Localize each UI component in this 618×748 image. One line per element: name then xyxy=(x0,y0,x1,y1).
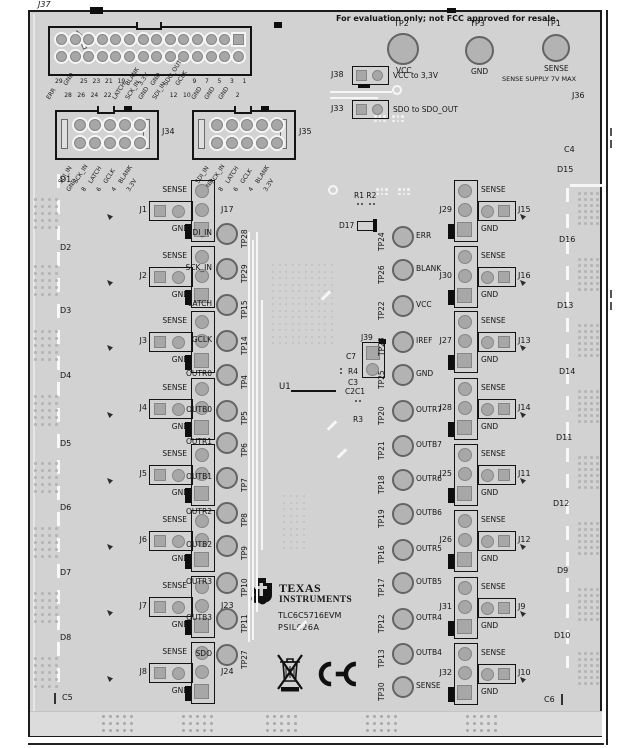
via-dot xyxy=(48,685,51,688)
jumper-label: J8 xyxy=(129,668,147,677)
via-dot xyxy=(41,265,44,268)
strip-dot xyxy=(203,729,206,732)
jumper-gnd-mark xyxy=(185,554,191,569)
via-dot xyxy=(292,264,294,266)
via-dot xyxy=(584,528,587,531)
via-dot xyxy=(41,541,44,544)
silk-dot xyxy=(398,193,401,196)
strip-dot xyxy=(480,729,483,732)
jumper-pad xyxy=(195,599,209,613)
via-dot xyxy=(292,303,294,305)
testpoint-TP30 xyxy=(392,676,414,698)
tp-number-label: TP30 xyxy=(378,673,388,701)
jumper-gnd-mark xyxy=(448,488,454,503)
via-dot xyxy=(34,541,37,544)
via-dot xyxy=(584,670,587,673)
via-dot xyxy=(590,198,593,201)
fiducial-mark xyxy=(90,7,103,14)
via-dot xyxy=(279,316,281,318)
via-dot xyxy=(290,547,292,549)
via-dot xyxy=(324,284,326,286)
via-dot xyxy=(48,409,51,412)
via-dot xyxy=(578,540,581,543)
jumper-sense-label: SENSE xyxy=(481,516,506,524)
via-dot xyxy=(48,592,51,595)
jumper-gnd-mark xyxy=(185,488,191,503)
j37-pin-pad xyxy=(192,34,203,45)
led-designator: D12 xyxy=(553,500,569,509)
strip-dot xyxy=(182,715,185,718)
via-dot xyxy=(55,490,58,493)
via-dot xyxy=(34,599,37,602)
tp-number-label: TP22 xyxy=(378,292,388,320)
via-dot xyxy=(41,293,44,296)
via-dot xyxy=(290,515,292,517)
strip-dot xyxy=(280,722,283,725)
testpoint-TP23 xyxy=(392,331,414,353)
tp-signal-label: OUTR5 xyxy=(416,545,442,553)
jumper-gnd-label: GND xyxy=(481,356,498,364)
via-dot xyxy=(596,354,599,357)
via-dot xyxy=(596,652,599,655)
via-dot xyxy=(303,528,305,530)
via-dot xyxy=(290,528,292,530)
via-dot xyxy=(34,606,37,609)
via-dot xyxy=(48,548,51,551)
via-dot xyxy=(596,264,599,267)
via-dot xyxy=(318,303,320,305)
via-dot xyxy=(272,271,274,273)
via-dot xyxy=(285,264,287,266)
header-pin-pad xyxy=(241,137,253,149)
via-dot xyxy=(596,258,599,261)
via-dot xyxy=(55,337,58,340)
jumper-pad xyxy=(457,486,472,501)
jumper-pad xyxy=(154,667,166,679)
via-dot xyxy=(48,469,51,472)
jumper-gnd-mark xyxy=(448,422,454,437)
via-dot xyxy=(318,336,320,338)
j37-pin-number: 9 xyxy=(193,79,197,86)
edge-tick xyxy=(610,140,612,148)
silk-dot xyxy=(385,188,388,191)
via-dot xyxy=(584,480,587,483)
via-dot xyxy=(272,316,274,318)
via-dot xyxy=(48,555,51,558)
jumper-pad xyxy=(172,667,185,680)
via-dot xyxy=(34,351,37,354)
via-dot xyxy=(34,671,37,674)
testpoint-label-tp3: TP3 xyxy=(470,20,485,29)
via-dot xyxy=(34,678,37,681)
testpoint-TP5 xyxy=(216,400,238,422)
jumper-pad xyxy=(458,600,472,614)
via-dot xyxy=(590,324,593,327)
via-dot xyxy=(584,588,587,591)
ic-outline-line xyxy=(291,390,336,392)
via-dot xyxy=(296,502,298,504)
testpoint-TP14 xyxy=(216,330,238,352)
testpoint-TP17 xyxy=(392,572,414,594)
strip-dot xyxy=(380,729,383,732)
via-dot xyxy=(55,330,58,333)
connector-label-j34: J34 xyxy=(162,128,175,137)
jumper-pad xyxy=(481,668,494,681)
via-dot xyxy=(331,323,333,325)
testpoint-TP18 xyxy=(392,469,414,491)
via-dot xyxy=(34,212,37,215)
silk-dot xyxy=(376,188,379,191)
strip-dot xyxy=(366,715,369,718)
via-dot xyxy=(324,271,326,273)
testpoint-TP22 xyxy=(392,295,414,317)
via-dot xyxy=(292,271,294,273)
via-dot xyxy=(55,476,58,479)
silk-dot xyxy=(381,193,384,196)
via-dot xyxy=(298,264,300,266)
jumper-label: J32 xyxy=(428,669,452,678)
via-dot xyxy=(584,682,587,685)
via-dot xyxy=(55,286,58,289)
jumper-pad xyxy=(195,665,209,679)
via-dot xyxy=(34,476,37,479)
jumper-pad xyxy=(195,203,209,217)
jumper-mark xyxy=(358,84,370,88)
via-dot xyxy=(34,344,37,347)
via-dot xyxy=(305,316,307,318)
via-dot xyxy=(578,546,581,549)
via-dot xyxy=(578,264,581,267)
via-dot xyxy=(324,342,326,344)
via-dot xyxy=(41,490,44,493)
via-dot xyxy=(578,210,581,213)
via-dot xyxy=(55,272,58,275)
via-dot xyxy=(34,483,37,486)
jumper-label: J11 xyxy=(518,470,531,479)
jumper-pad xyxy=(458,184,472,198)
res-pad-dot xyxy=(361,203,363,205)
via-dot xyxy=(290,495,292,497)
header-pin-pad xyxy=(134,119,146,131)
tp-signal-label: OUTB1 xyxy=(120,473,212,482)
via-dot xyxy=(596,210,599,213)
via-dot xyxy=(279,271,281,273)
strip-dot xyxy=(494,715,497,718)
jumper-pad xyxy=(195,250,209,264)
strip-dot xyxy=(466,722,469,725)
header-pin-pad xyxy=(104,137,116,149)
strip-dot xyxy=(189,729,192,732)
via-dot xyxy=(324,316,326,318)
via-dot xyxy=(590,612,593,615)
jumper-label: J2 xyxy=(129,272,147,281)
jumper-pad xyxy=(372,70,383,81)
via-dot xyxy=(311,310,313,312)
via-dot xyxy=(279,290,281,292)
testpoint-TP16 xyxy=(392,539,414,561)
via-dot xyxy=(578,528,581,531)
via-dot xyxy=(324,303,326,305)
jumper-gnd-label: GND xyxy=(151,555,189,564)
via-dot xyxy=(578,606,581,609)
via-dot xyxy=(590,390,593,393)
via-dot xyxy=(590,396,593,399)
via-dot xyxy=(41,358,44,361)
via-dot xyxy=(48,337,51,340)
via-dot xyxy=(311,323,313,325)
via-dot xyxy=(584,456,587,459)
via-dot xyxy=(578,198,581,201)
via-dot xyxy=(590,618,593,621)
via-dot xyxy=(55,395,58,398)
jumper-pad xyxy=(457,420,472,435)
tp-number-label: TP26 xyxy=(378,256,388,284)
connector-j35-notch xyxy=(234,106,252,114)
jumper-pad xyxy=(457,685,472,700)
via-dot xyxy=(285,323,287,325)
via-dot xyxy=(296,521,298,523)
jumper-pad xyxy=(458,448,472,462)
via-dot xyxy=(55,685,58,688)
via-dot xyxy=(34,534,37,537)
led-designator: D4 xyxy=(60,372,71,381)
fiducial-mark xyxy=(447,8,456,13)
header-pin-pad xyxy=(119,137,131,149)
via-dot xyxy=(55,657,58,660)
via-dot xyxy=(584,468,587,471)
via-dot xyxy=(55,423,58,426)
strip-dot xyxy=(373,722,376,725)
via-dot xyxy=(590,420,593,423)
jumper-pad xyxy=(194,353,209,368)
via-dot xyxy=(272,284,274,286)
via-dot xyxy=(311,271,313,273)
led-designator: D10 xyxy=(554,632,570,641)
res-pad-dot xyxy=(340,372,342,374)
via-dot xyxy=(55,198,58,201)
testpoint-TP28 xyxy=(216,223,238,245)
strip-dot xyxy=(116,729,119,732)
via-dot xyxy=(34,657,37,660)
via-dot xyxy=(41,219,44,222)
via-dot xyxy=(272,277,274,279)
via-dot xyxy=(596,480,599,483)
via-dot xyxy=(331,271,333,273)
jumper-pad xyxy=(457,619,472,634)
via-dot xyxy=(578,456,581,459)
via-dot xyxy=(41,606,44,609)
jumper-gnd-label: GND xyxy=(151,687,189,696)
via-dot xyxy=(41,286,44,289)
jumper-pad xyxy=(194,420,209,435)
via-dot xyxy=(311,297,313,299)
via-dot xyxy=(324,336,326,338)
via-dot xyxy=(318,310,320,312)
pcb-layout-figure: J37 For evaluation only; not FCC approve… xyxy=(0,0,618,748)
via-dot xyxy=(578,468,581,471)
j33-description: SDO to SDO_OUT xyxy=(393,106,458,114)
strip-dot xyxy=(473,722,476,725)
j37-pin-number: 24 xyxy=(91,93,99,100)
via-dot xyxy=(584,462,587,465)
via-dot xyxy=(55,534,58,537)
via-dot xyxy=(311,336,313,338)
via-dot xyxy=(596,600,599,603)
via-dot xyxy=(292,310,294,312)
via-dot xyxy=(48,671,51,674)
via-dot xyxy=(298,342,300,344)
via-dot xyxy=(311,290,313,292)
via-dot xyxy=(34,219,37,222)
silk-dot xyxy=(376,193,379,196)
jumper-pad xyxy=(458,269,472,283)
via-dot xyxy=(578,676,581,679)
j37-pin-number: 28 xyxy=(64,93,72,100)
jumper-pad xyxy=(498,403,510,415)
via-dot xyxy=(596,658,599,661)
via-dot xyxy=(584,474,587,477)
jumper-gnd-label: GND xyxy=(481,225,498,233)
tp-signal-label: ERR xyxy=(416,232,431,240)
strip-dot xyxy=(123,715,126,718)
via-dot xyxy=(290,502,292,504)
via-dot xyxy=(596,402,599,405)
via-dot xyxy=(290,534,292,536)
jumper-gnd-mark xyxy=(185,422,191,437)
via-dot xyxy=(331,303,333,305)
via-dot xyxy=(596,192,599,195)
silk-dot xyxy=(403,193,406,196)
via-dot xyxy=(596,588,599,591)
via-dot xyxy=(48,476,51,479)
jumper-gnd-label: GND xyxy=(481,622,498,630)
via-dot xyxy=(292,336,294,338)
jumper-pad xyxy=(457,222,472,237)
silk-trace xyxy=(330,91,392,93)
via-dot xyxy=(292,316,294,318)
tp-signal-label: VCC xyxy=(416,301,432,309)
via-dot xyxy=(596,486,599,489)
via-dot xyxy=(298,336,300,338)
via-dot xyxy=(324,264,326,266)
via-dot xyxy=(292,277,294,279)
via-dot xyxy=(590,348,593,351)
via-dot xyxy=(34,226,37,229)
via-dot xyxy=(318,290,320,292)
via-dot xyxy=(55,671,58,674)
via-dot xyxy=(48,657,51,660)
silk-trace xyxy=(248,232,250,642)
via-dot xyxy=(596,676,599,679)
via-dot xyxy=(34,279,37,282)
strip-dot xyxy=(394,729,397,732)
strip-dot xyxy=(210,715,213,718)
jumper-pad xyxy=(498,469,510,481)
via-dot xyxy=(48,541,51,544)
jumper-sense-label: SENSE xyxy=(481,583,506,591)
via-dot xyxy=(55,620,58,623)
via-dot xyxy=(55,541,58,544)
via-dot xyxy=(305,336,307,338)
jumper-gnd-mark xyxy=(448,224,454,239)
via-dot xyxy=(584,612,587,615)
via-dot xyxy=(55,293,58,296)
via-dot xyxy=(596,474,599,477)
tp-number-label: TP25 xyxy=(378,361,388,389)
via-dot xyxy=(305,264,307,266)
via-dot xyxy=(311,284,313,286)
via-dot xyxy=(298,284,300,286)
tp-number-label: TP20 xyxy=(378,397,388,425)
header-pin-pad xyxy=(211,119,223,131)
via-dot xyxy=(584,330,587,333)
strip-dot xyxy=(487,722,490,725)
silk-dot xyxy=(379,120,382,123)
via-dot xyxy=(279,342,281,344)
tp-signal-label: OUTB3 xyxy=(120,614,212,623)
via-dot xyxy=(34,265,37,268)
via-dot xyxy=(584,258,587,261)
jumper-sense-label: SENSE xyxy=(481,384,506,392)
strip-dot xyxy=(189,715,192,718)
via-dot xyxy=(578,462,581,465)
jumper-label-j38: J38 xyxy=(331,71,344,80)
jumper-pad xyxy=(458,666,472,680)
via-dot xyxy=(298,290,300,292)
via-dot xyxy=(34,402,37,405)
tp-number-label: TP12 xyxy=(378,605,388,633)
via-dot xyxy=(578,486,581,489)
silk-dot xyxy=(403,188,406,191)
via-dot xyxy=(590,676,593,679)
silk-dot xyxy=(398,188,401,191)
via-dot xyxy=(303,502,305,504)
j37-pin-pad xyxy=(70,51,81,62)
via-dot xyxy=(590,588,593,591)
jumper-pad xyxy=(498,535,510,547)
via-dot xyxy=(590,276,593,279)
jumper-label: J15 xyxy=(518,206,531,215)
via-dot xyxy=(324,290,326,292)
strip-dot xyxy=(494,722,497,725)
via-dot xyxy=(584,348,587,351)
via-dot xyxy=(41,423,44,426)
via-dot xyxy=(584,216,587,219)
strip-dot xyxy=(130,729,133,732)
evaluation-note: For evaluation only; not FCC approved fo… xyxy=(336,15,559,24)
jumper-gnd-mark xyxy=(448,290,454,305)
via-dot xyxy=(578,336,581,339)
via-dot xyxy=(34,462,37,465)
via-dot xyxy=(311,342,313,344)
jumper-pad xyxy=(481,336,494,349)
via-dot xyxy=(578,258,581,261)
via-dot xyxy=(285,303,287,305)
j37-pin-pad xyxy=(124,51,135,62)
via-dot xyxy=(590,670,593,673)
via-dot xyxy=(590,594,593,597)
jumper-pad xyxy=(458,334,472,348)
via-dot xyxy=(292,290,294,292)
silk-trace xyxy=(256,232,258,612)
via-dot xyxy=(596,612,599,615)
via-dot xyxy=(55,606,58,609)
strip-dot xyxy=(287,729,290,732)
via-dot xyxy=(303,521,305,523)
via-dot xyxy=(41,592,44,595)
via-dot xyxy=(596,198,599,201)
via-dot xyxy=(303,515,305,517)
